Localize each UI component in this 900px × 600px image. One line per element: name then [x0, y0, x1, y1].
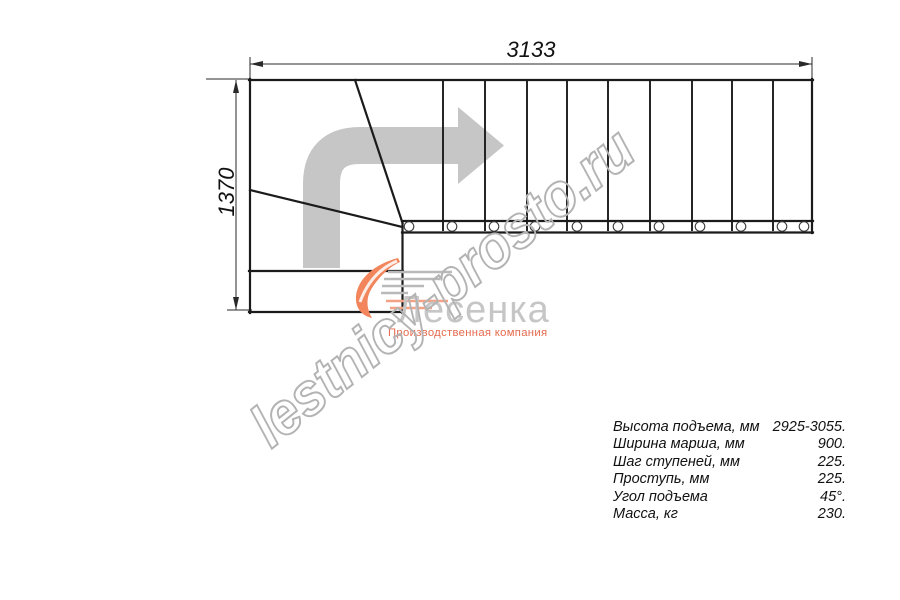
spec-label: Шаг ступеней, мм: [613, 454, 740, 471]
staircase-drawing-canvas: 3133 1370: [0, 0, 900, 600]
spec-label: Масса, кг: [613, 506, 678, 523]
dimension-length-label: 3133: [507, 37, 557, 62]
spec-row-angle: Угол подъема 45°.: [613, 489, 846, 506]
spec-label: Высота подъема, мм: [613, 419, 760, 436]
spec-value: 900.: [818, 436, 846, 453]
spec-list: Высота подъема, мм 2925-3055. Ширина мар…: [613, 419, 846, 523]
spec-value: 225.: [818, 454, 846, 471]
spec-label: Ширина марша, мм: [613, 436, 745, 453]
spec-row-flight-width: Ширина марша, мм 900.: [613, 436, 846, 453]
dimension-width-label: 1370: [214, 167, 239, 217]
spec-value: 2925-3055.: [773, 419, 846, 436]
spec-value: 45°.: [820, 489, 846, 506]
spec-value: 225.: [818, 471, 846, 488]
spec-row-tread: Проступь, мм 225.: [613, 471, 846, 488]
spec-label: Угол подъема: [613, 489, 708, 506]
spec-row-height: Высота подъема, мм 2925-3055.: [613, 419, 846, 436]
spec-value: 230.: [818, 506, 846, 523]
spec-label: Проступь, мм: [613, 471, 709, 488]
spec-row-step-pitch: Шаг ступеней, мм 225.: [613, 454, 846, 471]
spec-row-mass: Масса, кг 230.: [613, 506, 846, 523]
